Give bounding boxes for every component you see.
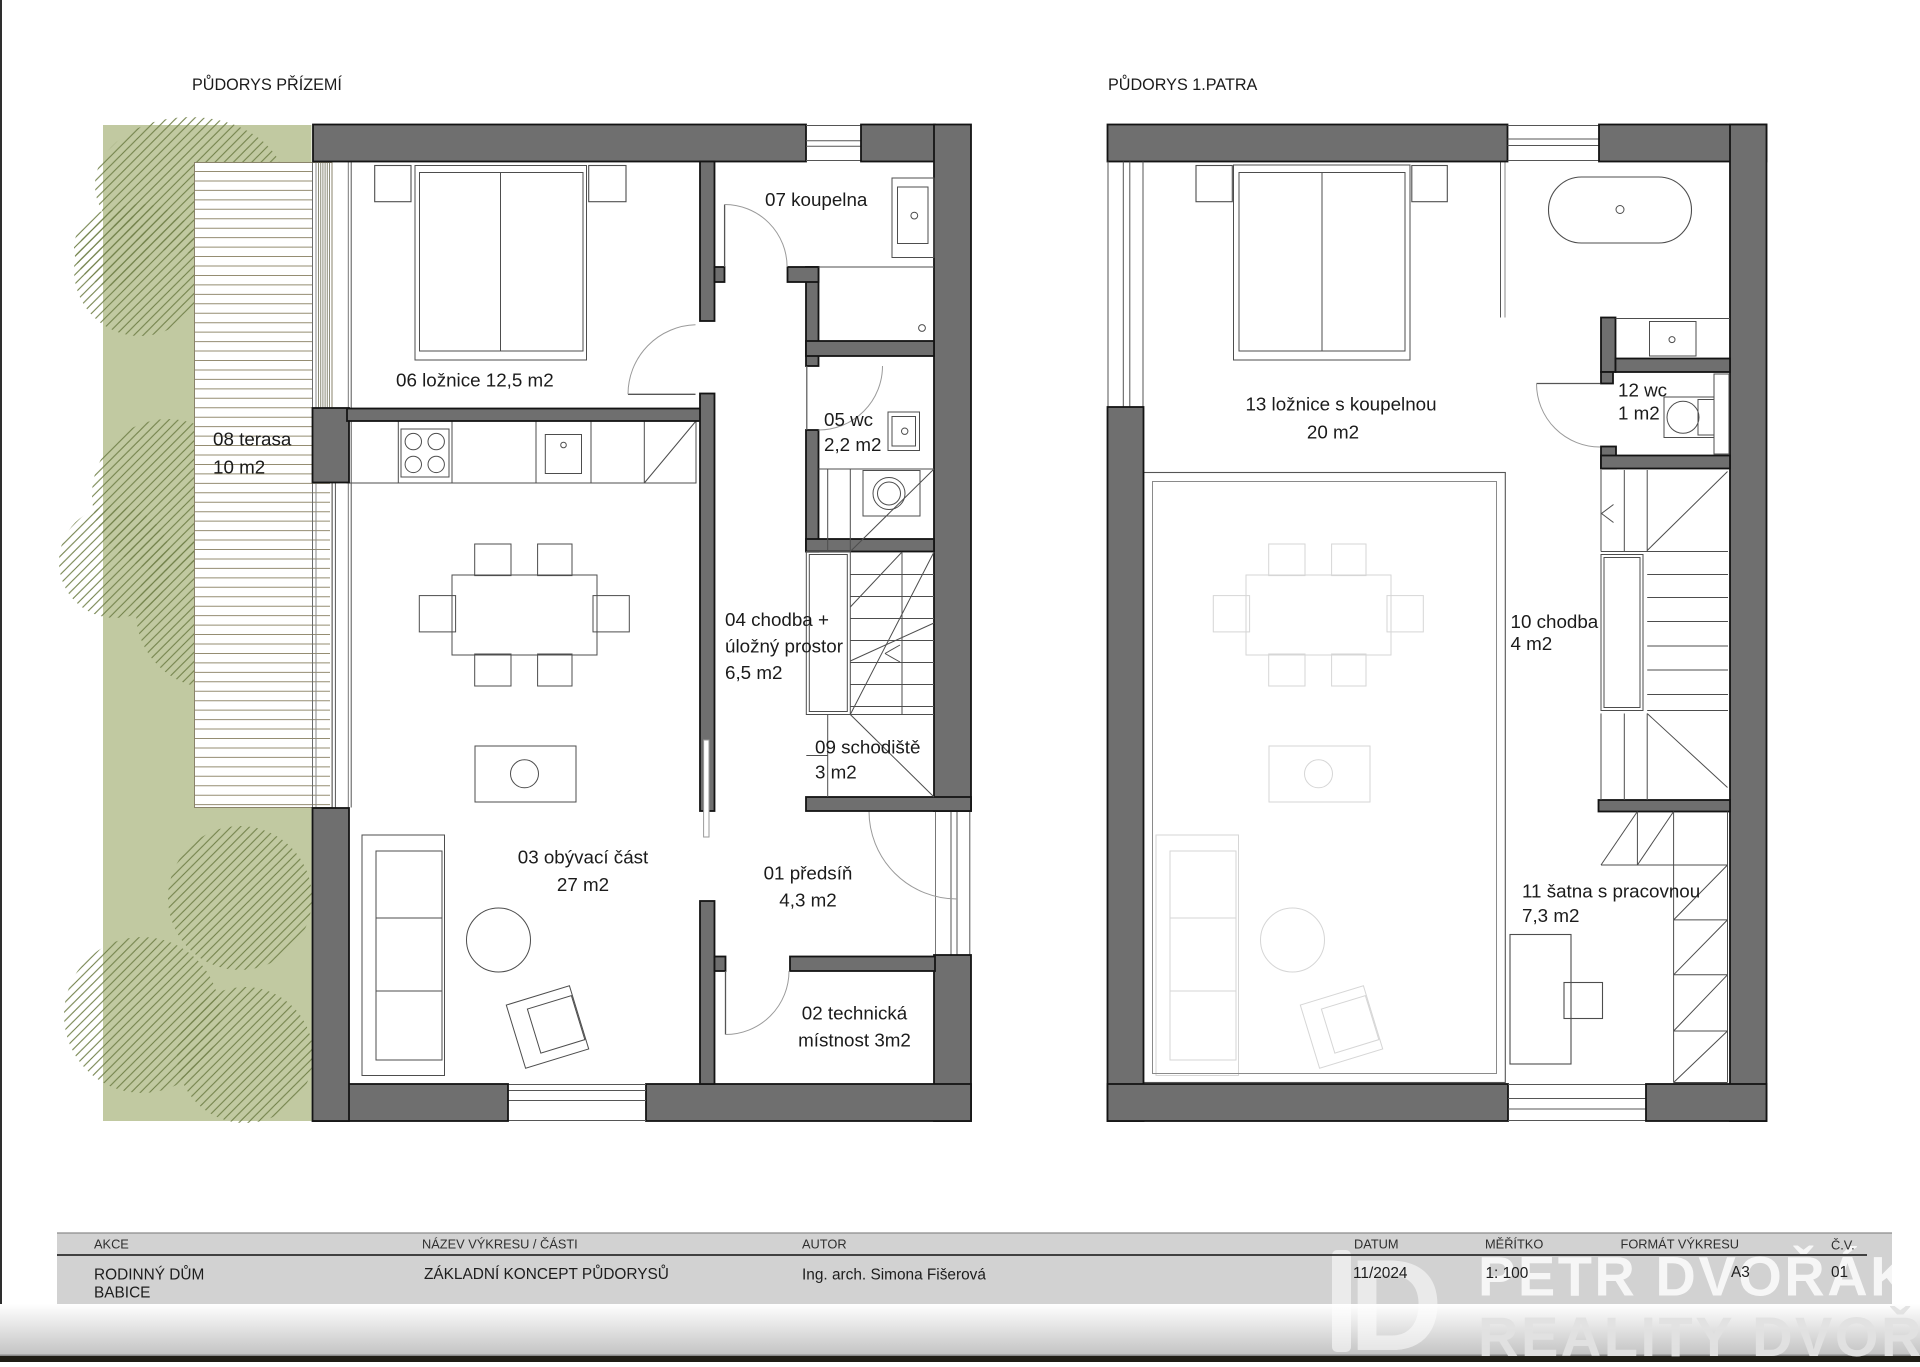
svg-text:ZÁKLADNÍ KONCEPT PŮDORYSŮ: ZÁKLADNÍ KONCEPT PŮDORYSŮ: [424, 1265, 669, 1283]
svg-text:09 schodiště: 09 schodiště: [815, 737, 920, 758]
svg-text:12 wc: 12 wc: [1618, 380, 1667, 401]
svg-text:4 m2: 4 m2: [1511, 633, 1553, 654]
svg-text:08 terasa: 08 terasa: [213, 429, 292, 450]
svg-text:03 obývací část: 03 obývací část: [518, 847, 649, 868]
svg-text:BABICE: BABICE: [94, 1285, 150, 1302]
svg-text:01 předsíň: 01 předsíň: [764, 863, 853, 884]
svg-text:Ing. arch. Simona Fišerová: Ing. arch. Simona Fišerová: [802, 1267, 986, 1284]
svg-text:05 wc: 05 wc: [824, 409, 873, 430]
svg-text:01: 01: [1831, 1264, 1848, 1281]
svg-text:NÁZEV VÝKRESU / ČÁSTI: NÁZEV VÝKRESU / ČÁSTI: [422, 1237, 578, 1252]
svg-text:MĚŘÍTKO: MĚŘÍTKO: [1485, 1237, 1543, 1252]
svg-text:Č.V.: Č.V.: [1831, 1238, 1855, 1253]
svg-text:11/2024: 11/2024: [1353, 1265, 1408, 1282]
svg-text:11 šatna s pracovnou: 11 šatna s pracovnou: [1522, 881, 1700, 902]
svg-text:27 m2: 27 m2: [557, 874, 609, 895]
svg-text:PŮDORYS PŘÍZEMÍ: PŮDORYS PŘÍZEMÍ: [192, 75, 342, 94]
svg-text:06 ložnice 12,5 m2: 06 ložnice 12,5 m2: [396, 370, 554, 391]
svg-text:A3: A3: [1731, 1264, 1750, 1281]
svg-text:1: 100: 1: 100: [1486, 1265, 1529, 1282]
svg-text:DATUM: DATUM: [1354, 1237, 1399, 1252]
svg-text:úložný prostor: úložný prostor: [725, 636, 843, 657]
svg-text:02 technická: 02 technická: [802, 1003, 908, 1024]
svg-text:FORMÁT VÝKRESU: FORMÁT VÝKRESU: [1621, 1237, 1740, 1252]
svg-text:RODINNÝ DŮM: RODINNÝ DŮM: [94, 1266, 204, 1284]
svg-text:10 m2: 10 m2: [213, 457, 265, 478]
svg-text:PŮDORYS 1.PATRA: PŮDORYS 1.PATRA: [1108, 75, 1258, 94]
svg-text:07 koupelna: 07 koupelna: [765, 189, 868, 210]
svg-text:13 ložnice s koupelnou: 13 ložnice s koupelnou: [1245, 394, 1436, 415]
svg-text:AUTOR: AUTOR: [802, 1237, 847, 1252]
svg-text:10 chodba: 10 chodba: [1511, 611, 1599, 632]
svg-text:6,5 m2: 6,5 m2: [725, 662, 782, 683]
svg-text:REALITY DVOŘÁK: REALITY DVOŘÁK: [1478, 1305, 1920, 1362]
svg-text:D: D: [1349, 1232, 1443, 1362]
svg-text:4,3 m2: 4,3 m2: [779, 890, 836, 911]
svg-text:20 m2: 20 m2: [1307, 422, 1359, 443]
svg-text:7,3 m2: 7,3 m2: [1522, 905, 1579, 926]
svg-text:3 m2: 3 m2: [815, 762, 857, 783]
svg-text:2,2 m2: 2,2 m2: [824, 434, 881, 455]
svg-text:místnost 3m2: místnost 3m2: [798, 1030, 911, 1051]
svg-text:AKCE: AKCE: [94, 1237, 129, 1252]
svg-text:04 chodba +: 04 chodba +: [725, 609, 829, 630]
svg-text:1 m2: 1 m2: [1618, 403, 1660, 424]
